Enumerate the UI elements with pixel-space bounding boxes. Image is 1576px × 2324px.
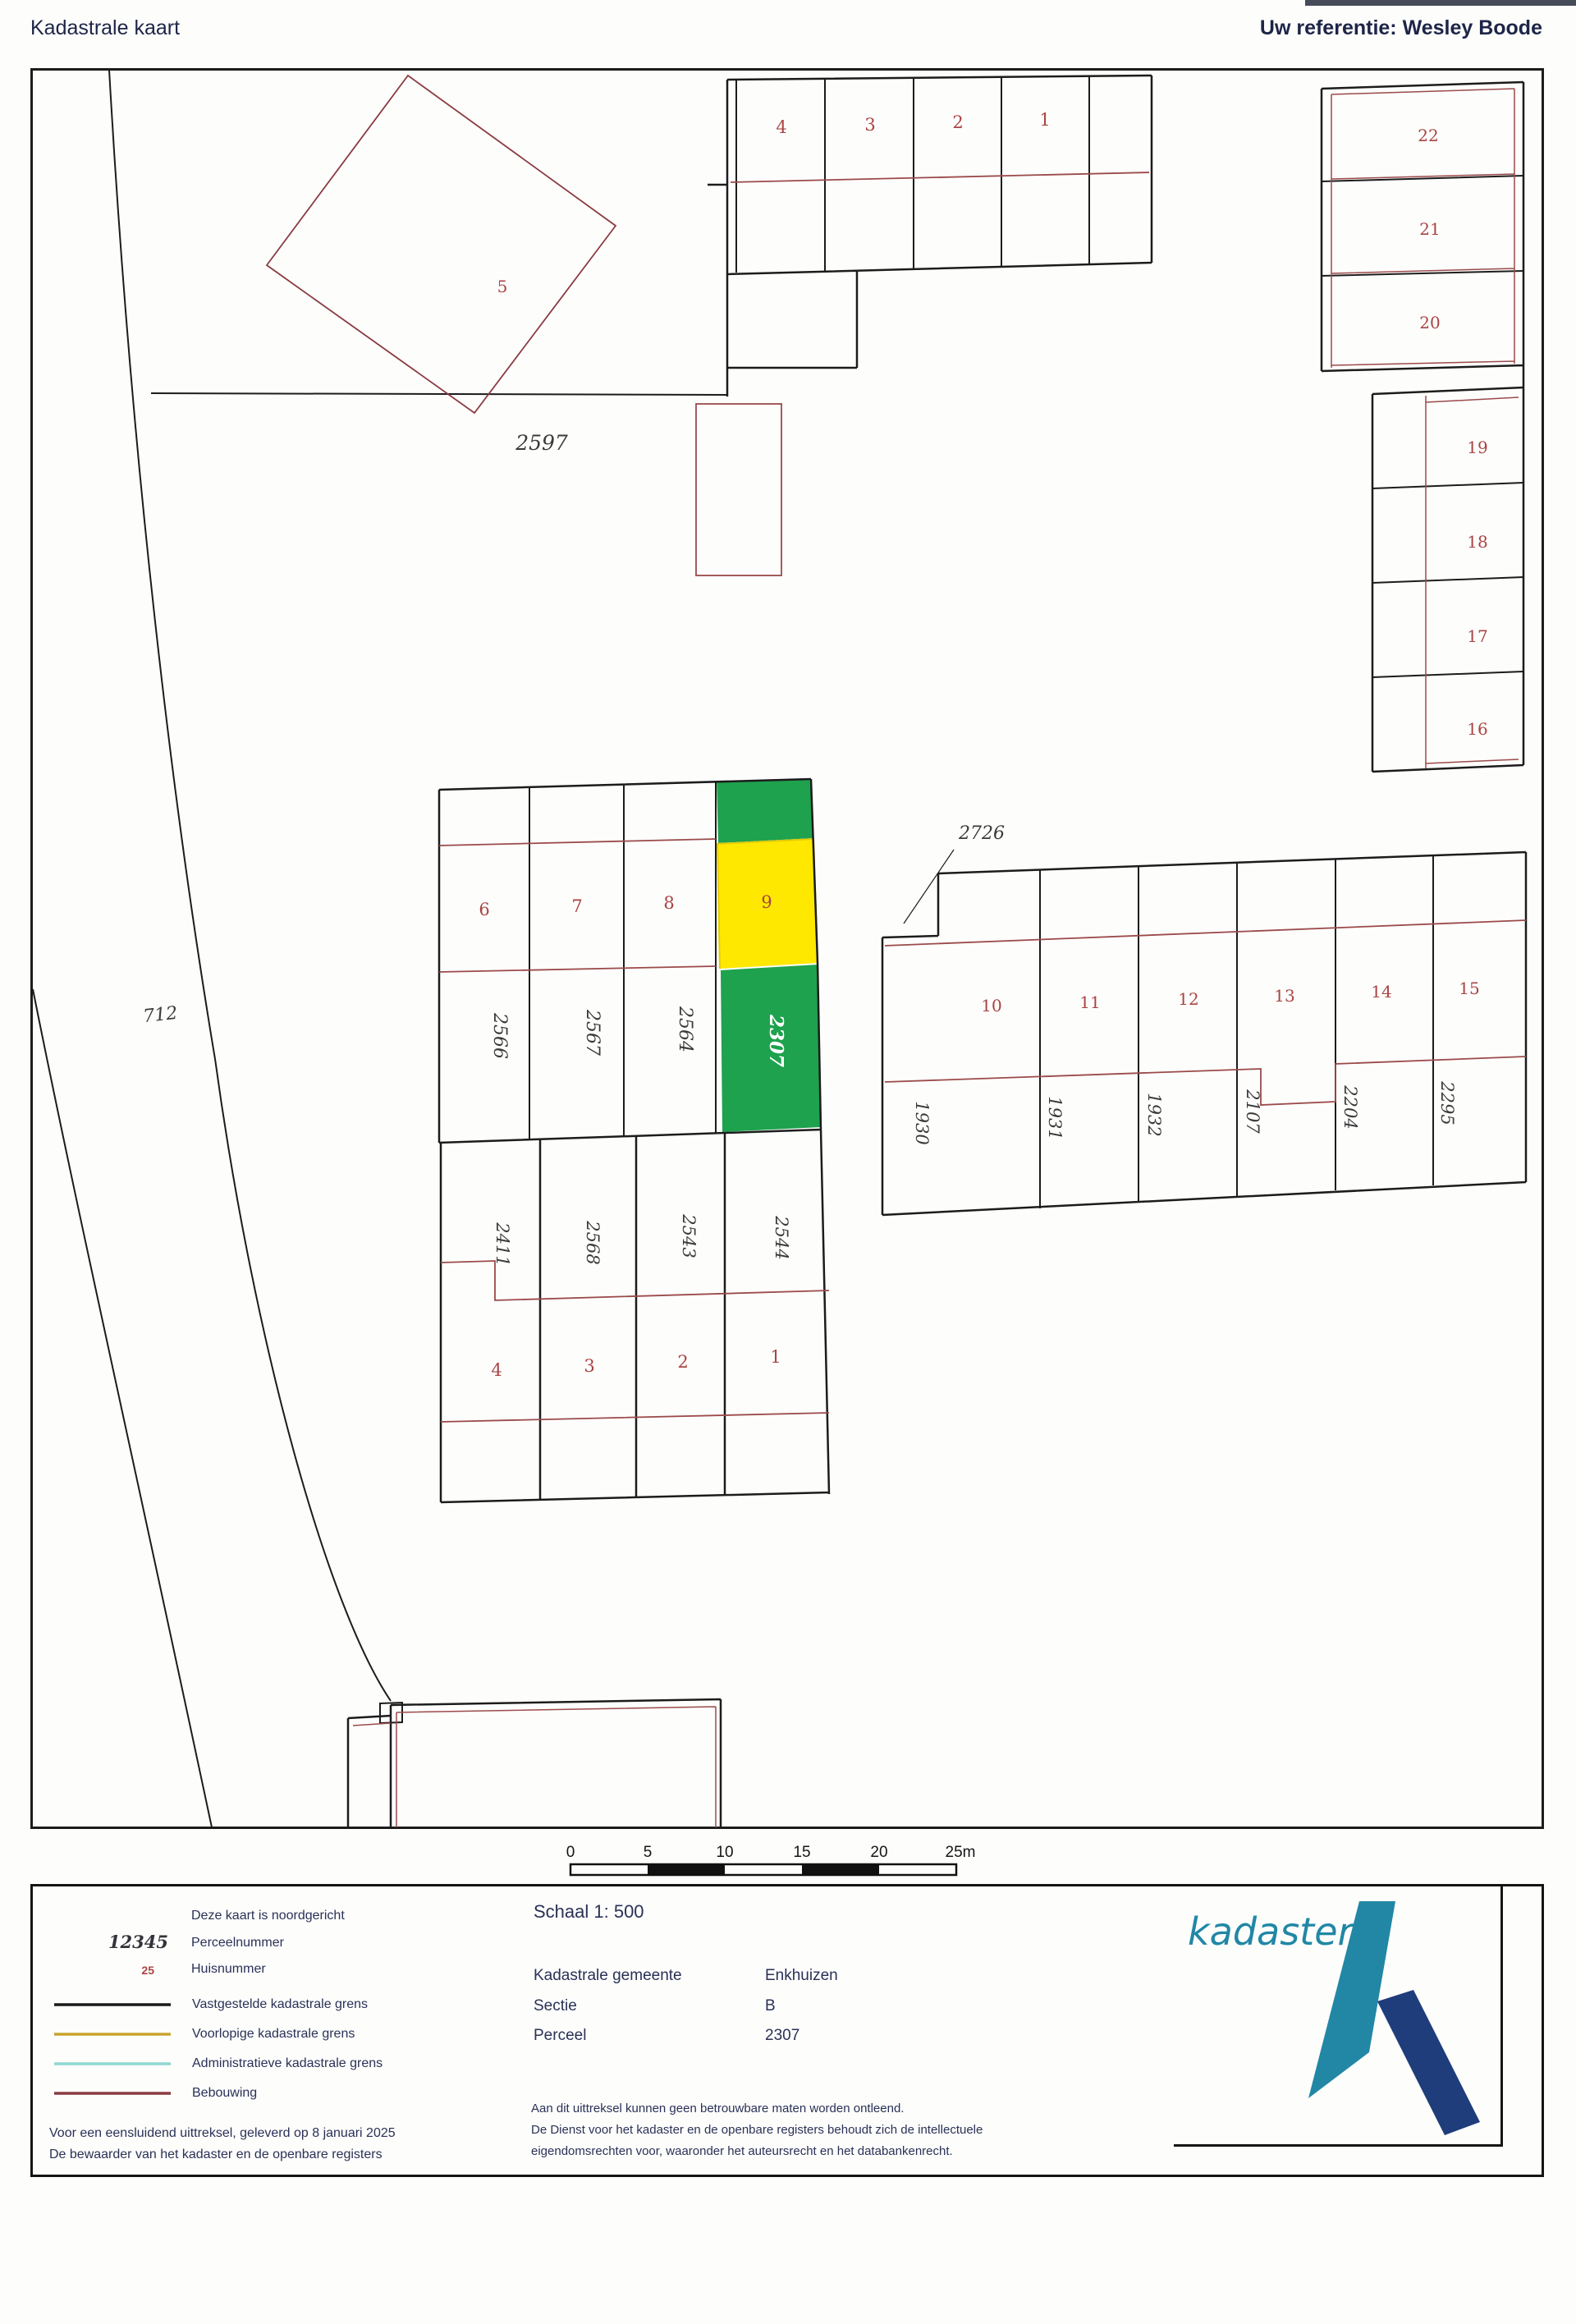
parcel-boundary [882,852,1526,1215]
footnote-delivery: Voor een eensluidend uittreksel, gelever… [49,2126,396,2141]
detail-value-gemeente: Enkhuizen [765,1967,838,1985]
perceelnummer-2726: 2726 [958,823,1005,844]
cadastral-map: 712 5 2597 4 3 2 1 6 [30,68,1544,1829]
scale-tick-25m: 25m [946,1844,976,1861]
perceelnummer-2295: 2295 [1437,1080,1457,1125]
parcel-boundary [348,1699,721,1827]
kadaster-logo-icon [1301,1892,1490,2143]
perceelnummer-2567: 2567 [582,1009,602,1056]
scale-text: Schaal 1: 500 [534,1901,644,1923]
legend-line-sample-icon [51,2089,174,2097]
east-block-group: 2726 10 11 12 13 14 15 1930 1931 1932 21… [882,823,1526,1215]
huisnummer-1-south: 1 [770,1347,781,1367]
huisnummer-3-south: 3 [584,1356,594,1376]
perceelnummer-1932: 1932 [1144,1093,1164,1136]
huisnummer-1: 1 [1039,110,1050,130]
legend-line-label: Voorlopige kadastrale grens [192,2027,355,2042]
huisnummer-9: 9 [761,892,772,912]
huisnummer-12: 12 [1178,989,1198,1009]
bebouwing-line [353,1707,716,1827]
perceelnummer-2204: 2204 [1340,1084,1360,1129]
huisnummer-legend-label: Huisnummer [191,1962,266,1977]
huisnummer-22: 22 [1418,126,1438,145]
northeast-lower-group: 19 18 17 16 [1372,387,1523,772]
perceelnummer-2411: 2411 [492,1222,512,1266]
legend-line-label: Administratieve kadastrale grens [192,2056,383,2071]
north-note: Deze kaart is noordgericht [191,1909,345,1923]
building-outline-5 [267,76,616,413]
perceelnummer-2564: 2564 [675,1006,695,1052]
huisnummer-17: 17 [1467,626,1487,646]
parcel-boundary [708,76,1152,397]
page-title: Kadastrale kaart [30,16,180,40]
huisnummer-10: 10 [981,996,1001,1015]
perceelnummer-712: 712 [142,1003,178,1027]
logo-teal-blade-icon [1308,1901,1395,2098]
huisnummer-21: 21 [1419,219,1440,239]
perceelnummer-legend-label: Perceelnummer [191,1936,284,1950]
scale-bar-frame [570,1864,956,1875]
leader-line [904,850,954,924]
legend-line-label: Vastgestelde kadastrale grens [192,1997,368,2012]
scale-segment-black [648,1864,725,1875]
legend-row-voorlopige: Voorlopige kadastrale grens [51,2019,383,2049]
huisnummer-5: 5 [497,277,508,296]
huisnummer-18: 18 [1467,532,1487,552]
parcel-divider [1372,483,1523,677]
parcel-5-group: 5 2597 [267,76,781,575]
detail-value-perceel: 2307 [765,2027,799,2045]
scale-segment-black [802,1864,879,1875]
huisnummer-sample: 25 [49,1964,154,1977]
scale-tick-0: 0 [566,1844,575,1861]
road-edge-west [33,989,212,1827]
perceelnummer-1930: 1930 [912,1101,932,1144]
huisnummer-2-south: 2 [677,1352,688,1372]
perceelnummer-sample: 12345 [49,1932,168,1952]
scale-tick-5: 5 [644,1844,653,1861]
legend-line-sample-icon [51,2030,174,2038]
huisnummer-14: 14 [1371,982,1391,1002]
legend-row-bebouwing: Bebouwing [51,2079,383,2108]
reference-text: Uw referentie: Wesley Boode [1260,16,1542,40]
buildings-group [348,1699,721,1827]
legend-line-sample-icon [51,2060,174,2068]
huisnummer-4-south: 4 [491,1360,502,1380]
huisnummer-4: 4 [776,117,786,137]
perceelnummer-2543: 2543 [679,1213,699,1258]
legend-row-vastgestelde: Vastgestelde kadastrale grens [51,1990,383,2019]
huisnummer-20: 20 [1419,313,1440,332]
detail-label-sectie: Sectie [534,1997,577,2015]
legend-row-administratieve: Administratieve kadastrale grens [51,2049,383,2079]
perceelnummer-2107: 2107 [1243,1089,1262,1134]
bebouwing-line [731,172,1149,182]
disclaimer-line-2: De Dienst voor het kadaster en de openba… [531,2123,983,2137]
north-strip-group: 4 3 2 1 [708,76,1152,397]
detail-value-sectie: B [765,1997,776,2015]
huisnummer-15: 15 [1459,979,1479,998]
huisnummer-3: 3 [864,115,875,135]
disclaimer-line-1: Aan dit uittreksel kunnen geen betrouwba… [531,2102,904,2115]
legend-line-label: Bebouwing [192,2086,257,2101]
scale-tick-15: 15 [793,1844,810,1861]
south-block-group: 2411 2568 2543 2544 4 3 2 1 [441,1130,829,1502]
document-page: Kadastrale kaart Uw referentie: Wesley B… [0,0,1576,2324]
parcel-divider [529,781,716,1139]
parcel-boundary [151,393,727,395]
scale-tick-10: 10 [716,1844,733,1861]
perceelnummer-1931: 1931 [1045,1096,1065,1139]
footnote-registrar: De bewaarder van het kadaster en de open… [49,2148,383,2162]
detail-label-gemeente: Kadastrale gemeente [534,1967,682,1985]
parcel-boundary [441,1130,829,1502]
scale-bar: 0 5 10 15 20 25m [542,1840,985,1883]
huisnummer-8: 8 [663,893,674,913]
scan-edge-bar [1305,0,1576,6]
perceelnummer-2566: 2566 [489,1012,510,1059]
bebouwing-line [441,1261,829,1422]
legend-line-sample-icon [51,2001,174,2009]
parcel-divider [1040,855,1433,1208]
perceelnummer-2544: 2544 [772,1215,791,1259]
huisnummer-6: 6 [479,900,489,919]
perceelnummer-2597: 2597 [515,431,568,455]
logo-navy-stroke-icon [1377,1990,1480,2135]
highlight-green-upper [716,779,813,844]
huisnummer-11: 11 [1079,992,1100,1012]
huisnummer-2: 2 [952,112,963,132]
center-block-group: 6 7 8 9 2566 2567 2564 2307 [439,779,821,1143]
road-edge-east [109,70,391,1701]
huisnummer-13: 13 [1274,986,1294,1006]
building-outline [696,404,781,575]
huisnummer-7: 7 [571,896,582,916]
disclaimer-line-3: eigendomsrechten voor, waaronder het aut… [531,2144,953,2158]
huisnummer-16: 16 [1467,719,1487,739]
northeast-upper-group: 22 21 20 [1322,82,1523,387]
perceelnummer-2307-highlighted: 2307 [765,1014,787,1067]
huisnummer-19: 19 [1467,438,1487,457]
scale-tick-20: 20 [870,1844,887,1861]
detail-label-perceel: Perceel [534,2027,586,2045]
perceelnummer-2568: 2568 [583,1220,602,1264]
legend-lines: Vastgestelde kadastrale grens Voorlopige… [51,1990,383,2108]
